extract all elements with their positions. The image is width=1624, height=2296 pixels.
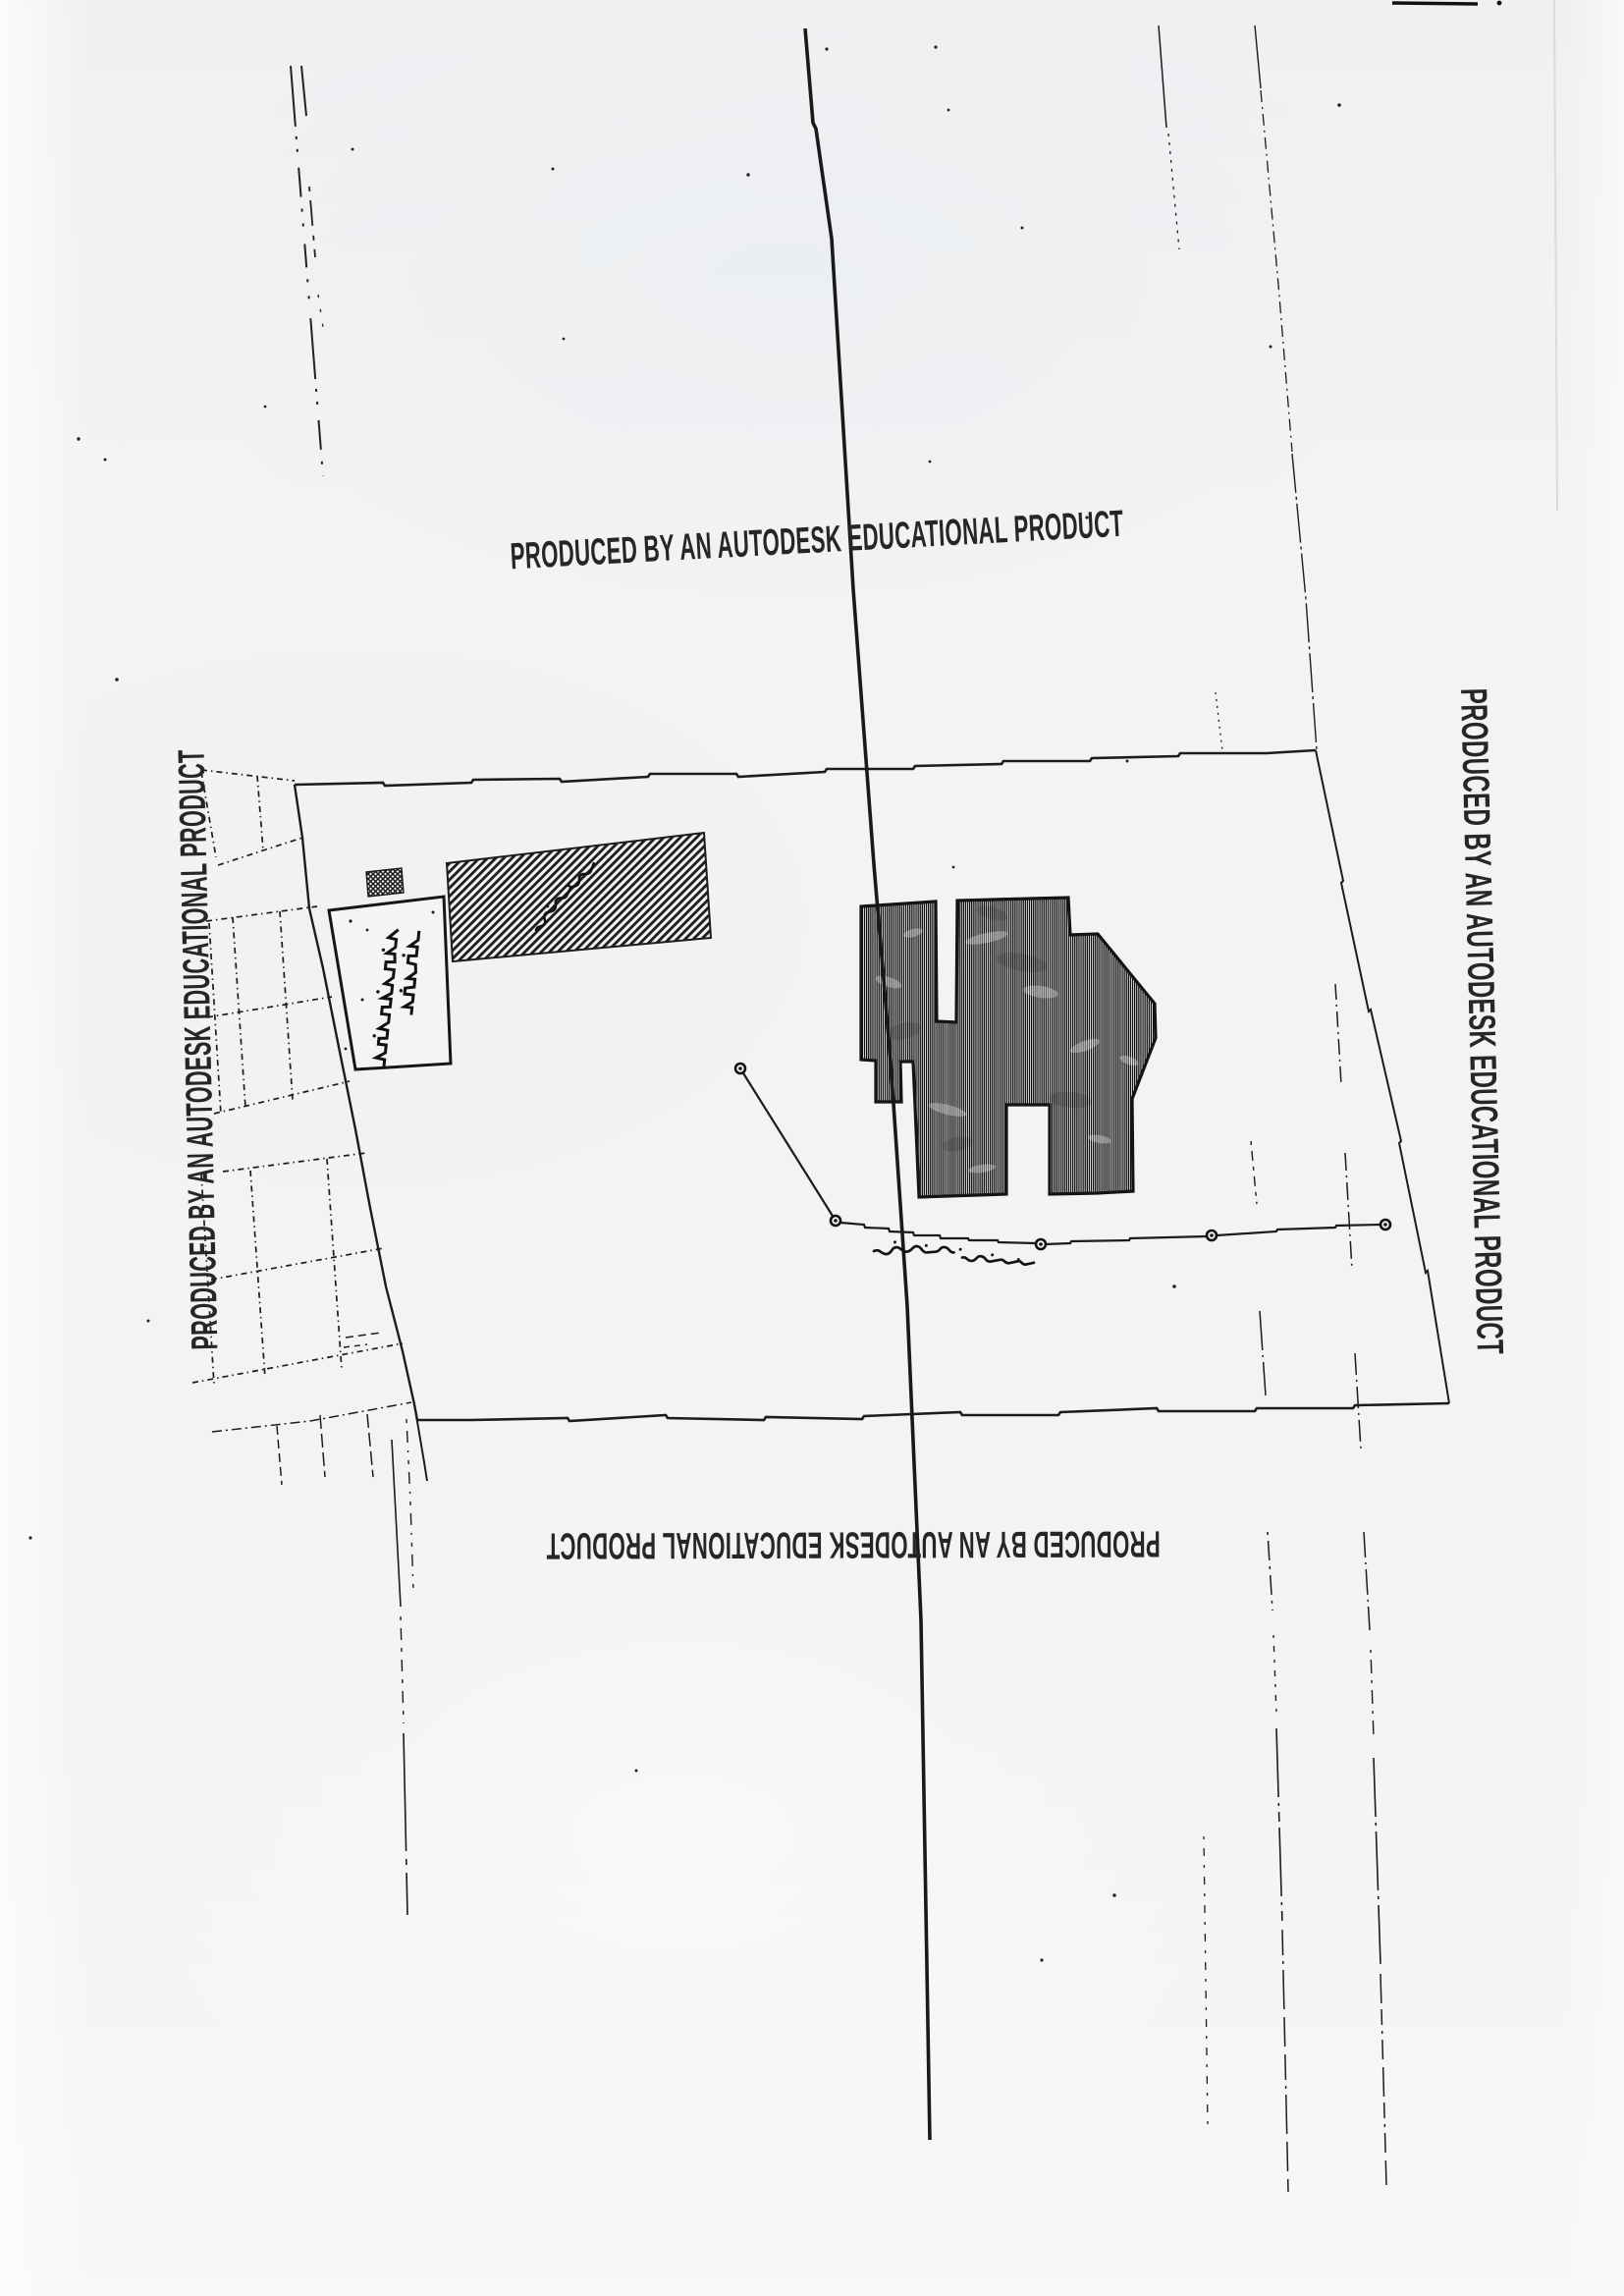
svg-text:PRODUCED BY AN AUTODESK EDUCAT: PRODUCED BY AN AUTODESK EDUCATIONAL PROD… xyxy=(1453,687,1512,1355)
svg-text:PRODUCED BY AN AUTODESK EDUCAT: PRODUCED BY AN AUTODESK EDUCATIONAL PROD… xyxy=(170,749,226,1350)
svg-text:PRODUCED BY AN AUTODESK EDUCAT: PRODUCED BY AN AUTODESK EDUCATIONAL PROD… xyxy=(510,502,1125,576)
svg-text:PRODUCED BY AN AUTODESK EDUCAT: PRODUCED BY AN AUTODESK EDUCATIONAL PROD… xyxy=(546,1523,1161,1567)
